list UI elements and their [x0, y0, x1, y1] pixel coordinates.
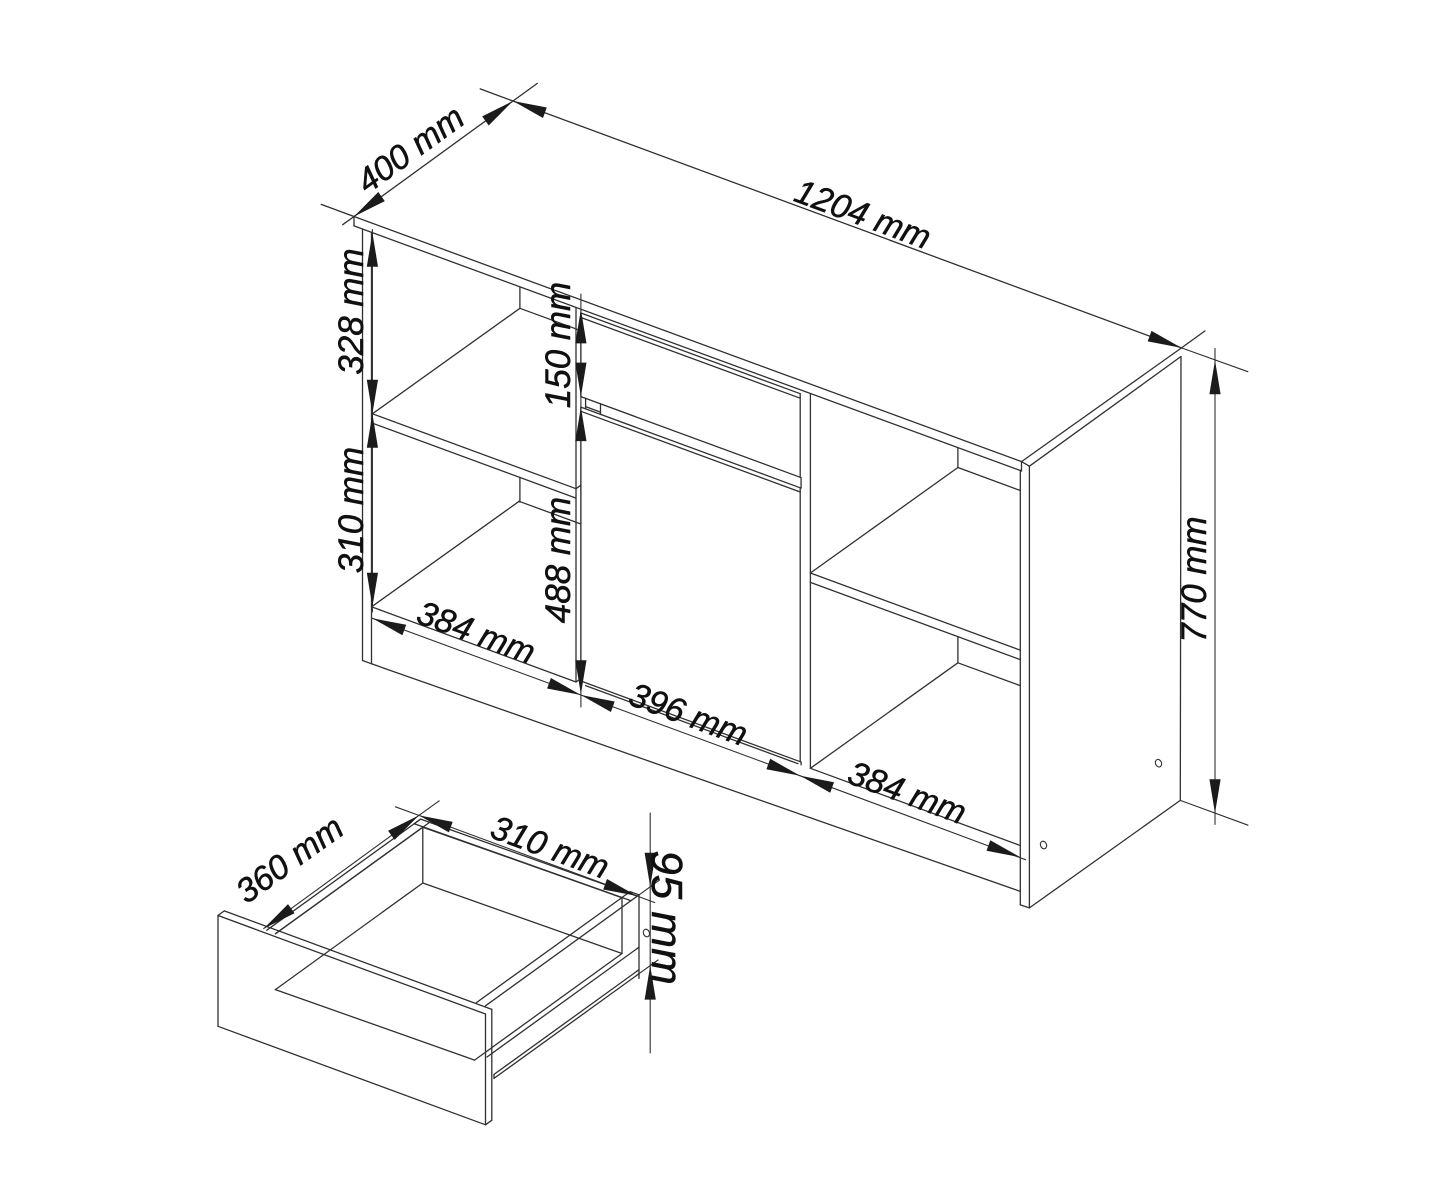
svg-text:95 mm: 95 mm [642, 850, 691, 984]
svg-text:488 mm: 488 mm [539, 497, 578, 623]
svg-text:150 mm: 150 mm [539, 282, 578, 408]
svg-text:310 mm: 310 mm [332, 447, 371, 573]
svg-text:770 mm: 770 mm [1175, 516, 1214, 642]
svg-text:328 mm: 328 mm [332, 248, 371, 374]
